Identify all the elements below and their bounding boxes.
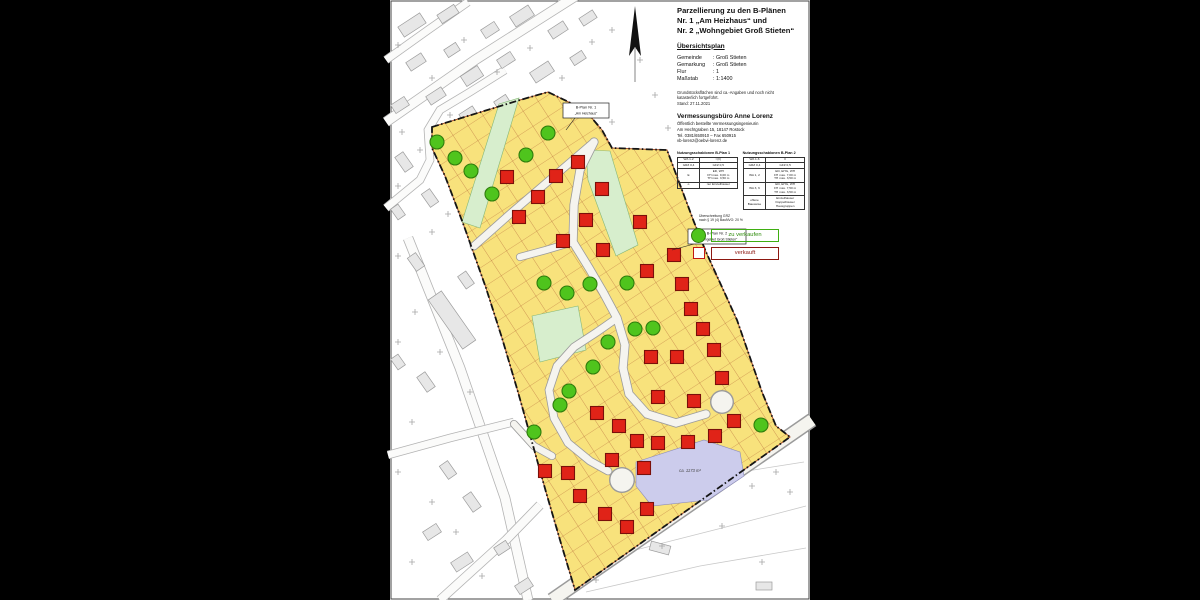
sold-marker (606, 454, 619, 467)
for-sale-marker-icon (691, 228, 706, 243)
for-sale-marker (620, 276, 634, 290)
sold-marker (631, 435, 644, 448)
usage-table-bplan1: Nutzungsschablonen B-Plan 1 WA 1-2I (II)… (677, 151, 738, 210)
sold-marker (716, 372, 729, 385)
for-sale-marker (628, 322, 642, 336)
legend-for-sale: zu verkaufen (691, 228, 805, 243)
svg-text:„Am Heizhaus“: „Am Heizhaus“ (575, 112, 597, 116)
sold-marker (550, 170, 563, 183)
sold-marker-icon (693, 247, 705, 259)
sold-marker (728, 415, 741, 428)
sold-marker (613, 420, 626, 433)
usage-tables: Nutzungsschablonen B-Plan 1 WA 1-2I (II)… (677, 151, 805, 210)
sold-marker (682, 436, 695, 449)
for-sale-marker (553, 398, 567, 412)
sold-marker (641, 265, 654, 278)
info-row: Flur: 1 (677, 69, 805, 76)
for-sale-marker (464, 164, 478, 178)
for-sale-marker (541, 126, 555, 140)
sold-marker (562, 467, 575, 480)
sold-marker (501, 171, 514, 184)
svg-text:B-Plan Nr. 1: B-Plan Nr. 1 (576, 106, 596, 110)
for-sale-marker (646, 321, 660, 335)
sold-marker (591, 407, 604, 420)
plan-sheet: ca. 1173 m²B-Plan Nr. 1„Am Heizhaus“B-Pl… (0, 0, 1200, 600)
for-sale-marker (560, 286, 574, 300)
sold-label: verkauft (711, 247, 779, 260)
sold-marker (641, 503, 654, 516)
sold-marker (539, 465, 552, 478)
title-block: Parzellierung zu den B-Plänen Nr. 1 „Am … (677, 6, 805, 261)
for-sale-marker (519, 148, 533, 162)
info-row: Gemarkung: Groß Stieten (677, 62, 805, 69)
for-sale-marker (430, 135, 444, 149)
grz-note: Überschreitung GRZ nach § 19 (4) BauNVO:… (699, 214, 805, 223)
sold-marker (513, 211, 526, 224)
for-sale-marker (562, 384, 576, 398)
sold-marker (599, 508, 612, 521)
sold-marker (532, 191, 545, 204)
for-sale-marker (485, 187, 499, 201)
parcellation-map: ca. 1173 m²B-Plan Nr. 1„Am Heizhaus“B-Pl… (0, 0, 1200, 600)
sold-marker (638, 462, 651, 475)
sold-marker (572, 156, 585, 169)
sold-marker (652, 391, 665, 404)
for-sale-marker (586, 360, 600, 374)
info-row: Maßstab: 1:1400 (677, 76, 805, 83)
sold-marker (685, 303, 698, 316)
for-sale-marker (527, 425, 541, 439)
info-row: Gemeinde: Groß Stieten (677, 55, 805, 62)
sold-marker (697, 323, 710, 336)
surveyor-details: Öffentlich bestellte Vermessungsingenieu… (677, 121, 805, 144)
legend: zu verkaufen verkauft (691, 228, 805, 261)
special-area-label: ca. 1173 m² (679, 468, 701, 473)
sold-marker (645, 351, 658, 364)
plan-subtitle: Übersichtsplan (677, 43, 805, 50)
for-sale-label: zu verkaufen (711, 229, 779, 242)
legend-sold: verkauft (691, 246, 805, 261)
sold-marker (709, 430, 722, 443)
sold-marker (634, 216, 647, 229)
sold-marker (688, 395, 701, 408)
sold-marker (580, 214, 593, 227)
surveyor-name: Vermessungsbüro Anne Lorenz (677, 113, 805, 120)
for-sale-marker (601, 335, 615, 349)
plan-info: Gemeinde: Groß Stieten Gemarkung: Groß S… (677, 55, 805, 84)
sold-marker (596, 183, 609, 196)
accuracy-note: Grundstücksflächen sind ca.-Angaben und … (677, 90, 805, 107)
sold-marker (676, 278, 689, 291)
for-sale-marker (448, 151, 462, 165)
plan-title: Parzellierung zu den B-Plänen Nr. 1 „Am … (677, 6, 805, 36)
sold-marker (671, 351, 684, 364)
usage-table-bplan2: Nutzungsschablonen B-Plan 2 WA 1-6II GRZ… (743, 151, 805, 210)
sold-marker (597, 244, 610, 257)
existing-building (756, 582, 772, 590)
sold-marker (557, 235, 570, 248)
sold-marker (708, 344, 721, 357)
sold-marker (621, 521, 634, 534)
sold-marker (574, 490, 587, 503)
for-sale-marker (537, 276, 551, 290)
for-sale-marker (583, 277, 597, 291)
for-sale-marker (754, 418, 768, 432)
sold-marker (652, 437, 665, 450)
